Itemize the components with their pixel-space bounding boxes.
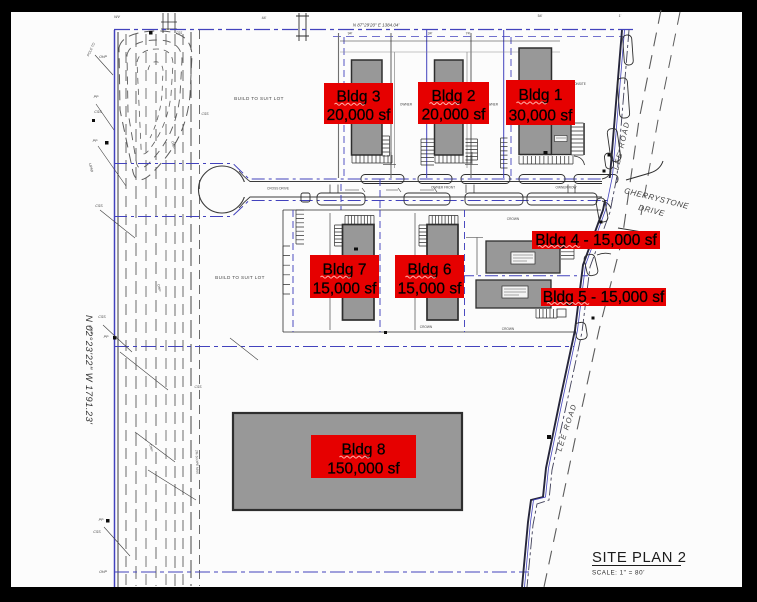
svg-text:20,000 sf: 20,000 sf <box>422 107 486 124</box>
svg-text:Bldg 6: Bldg 6 <box>408 261 452 278</box>
svg-text:OHP: OHP <box>99 55 107 59</box>
svg-text:CROWN: CROWN <box>502 327 515 331</box>
svg-text:PP: PP <box>93 139 98 143</box>
svg-text:BUILD TO SUIT LOT: BUILD TO SUIT LOT <box>215 275 265 280</box>
svg-text:N 87°29'20" E 1384.04': N 87°29'20" E 1384.04' <box>353 23 400 28</box>
svg-text:Bldg 5 - 15,000 sf: Bldg 5 - 15,000 sf <box>543 289 665 306</box>
svg-text:CSS: CSS <box>195 385 203 389</box>
svg-text:BUILD TO SUIT LOT: BUILD TO SUIT LOT <box>234 96 284 101</box>
svg-text:CROWN: CROWN <box>420 325 433 329</box>
svg-text:OHP: OHP <box>99 570 107 574</box>
svg-text:15,000 sf: 15,000 sf <box>398 281 462 298</box>
svg-text:PP: PP <box>104 335 109 339</box>
svg-text:Bldg 3: Bldg 3 <box>337 89 381 106</box>
svg-text:CSS: CSS <box>98 315 106 319</box>
svg-text:SITE PLAN 2: SITE PLAN 2 <box>592 550 687 566</box>
svg-text:PP: PP <box>99 518 104 522</box>
svg-text:CROSS DRIVE: CROSS DRIVE <box>267 187 289 191</box>
svg-text:Bldg 8: Bldg 8 <box>342 441 386 458</box>
svg-text:CSS: CSS <box>95 204 103 208</box>
svg-text:Bldg 2: Bldg 2 <box>432 88 476 105</box>
svg-text:150,000 sf: 150,000 sf <box>327 461 400 478</box>
svg-text:34': 34' <box>428 32 433 36</box>
svg-text:SCALE: 1" = 80’: SCALE: 1" = 80’ <box>592 570 645 577</box>
svg-text:OWNER: OWNER <box>400 103 413 107</box>
svg-text:15,000 sf: 15,000 sf <box>313 281 377 298</box>
svg-text:CROWN: CROWN <box>507 217 520 221</box>
svg-text:CSS: CSS <box>202 112 210 116</box>
svg-text:20,000 sf: 20,000 sf <box>327 107 391 124</box>
svg-text:1': 1' <box>619 14 622 18</box>
svg-text:CSS: CSS <box>94 110 102 114</box>
svg-text:CSS: CSS <box>93 530 101 534</box>
svg-text:Bldg 1: Bldg 1 <box>519 87 563 104</box>
svg-text:30,000 sf: 30,000 sf <box>509 107 573 124</box>
svg-text:PP: PP <box>94 95 99 99</box>
svg-text:44': 44' <box>262 16 267 20</box>
svg-text:OWNER ROW: OWNER ROW <box>556 186 577 190</box>
svg-text:CSS: CSS <box>176 31 183 35</box>
svg-text:54': 54' <box>538 14 543 18</box>
svg-text:94': 94' <box>348 32 353 36</box>
svg-text:OWNER FRONT: OWNER FRONT <box>431 186 455 190</box>
svg-text:WV: WV <box>114 15 120 19</box>
svg-text:ONSITE: ONSITE <box>574 82 586 86</box>
svg-text:74': 74' <box>466 32 471 36</box>
svg-text:Bldg 7: Bldg 7 <box>323 261 367 278</box>
